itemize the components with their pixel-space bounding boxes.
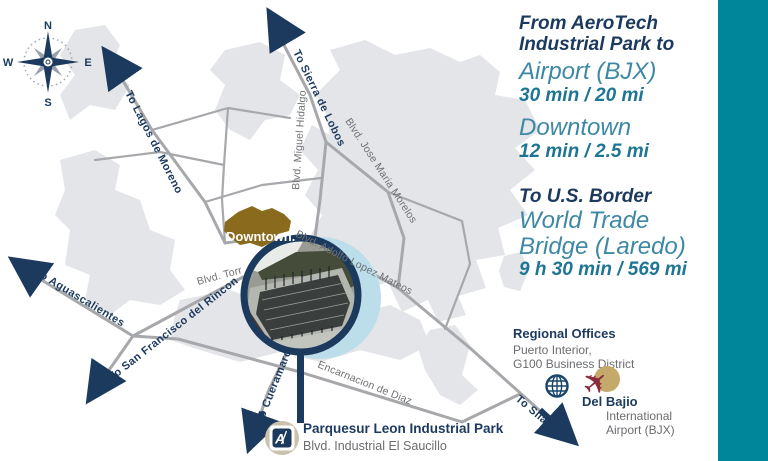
compass-s: S — [44, 97, 51, 109]
road-label-to-lagos: To Lagos de Moreno — [122, 89, 184, 196]
destination-downtown: Downtown — [519, 115, 719, 141]
border-heading: To U.S. Border — [519, 186, 719, 207]
destination-airport: Airport (BJX) — [519, 59, 719, 85]
border-name-line2: Bridge (Laredo) — [519, 235, 719, 259]
compass-e: E — [84, 57, 91, 69]
road-label-encarnacion: Encarnacion de Diaz — [316, 359, 414, 408]
border-time: 9 h 30 min / 569 mi — [519, 259, 719, 280]
road-label-to-cueramaro: To Cueramaro — [254, 348, 295, 425]
destination-airport-time: 30 min / 20 mi — [519, 85, 719, 106]
compass-w: W — [3, 57, 14, 69]
airport-subtitle-line1: International — [606, 409, 675, 423]
park-name: Parquesur Leon Industrial Park — [303, 421, 503, 436]
regional-offices-title: Regional Offices — [513, 326, 634, 341]
airport-name: Del Bajio — [582, 394, 638, 409]
callout-line — [297, 349, 304, 423]
panel-heading-line1: From AeroTech — [519, 13, 719, 34]
destination-downtown-time: 12 min / 2.5 mi — [519, 141, 719, 162]
downtown-label: Downtown. — [226, 229, 295, 244]
airport-subtitle: International Airport (BJX) — [606, 409, 675, 437]
park-address: Blvd. Industrial El Saucillo — [303, 439, 447, 453]
panel-heading-line2: Industrial Park to — [519, 34, 719, 55]
travel-info-panel: From AeroTech Industrial Park to Airport… — [519, 13, 719, 280]
aerotech-location-map: Blvd. Torr — [0, 0, 768, 461]
border-name-line1: World Trade — [519, 209, 719, 233]
teal-side-bar — [718, 0, 768, 461]
airport-subtitle-line2: Airport (BJX) — [606, 423, 675, 437]
compass-n: N — [44, 20, 52, 32]
